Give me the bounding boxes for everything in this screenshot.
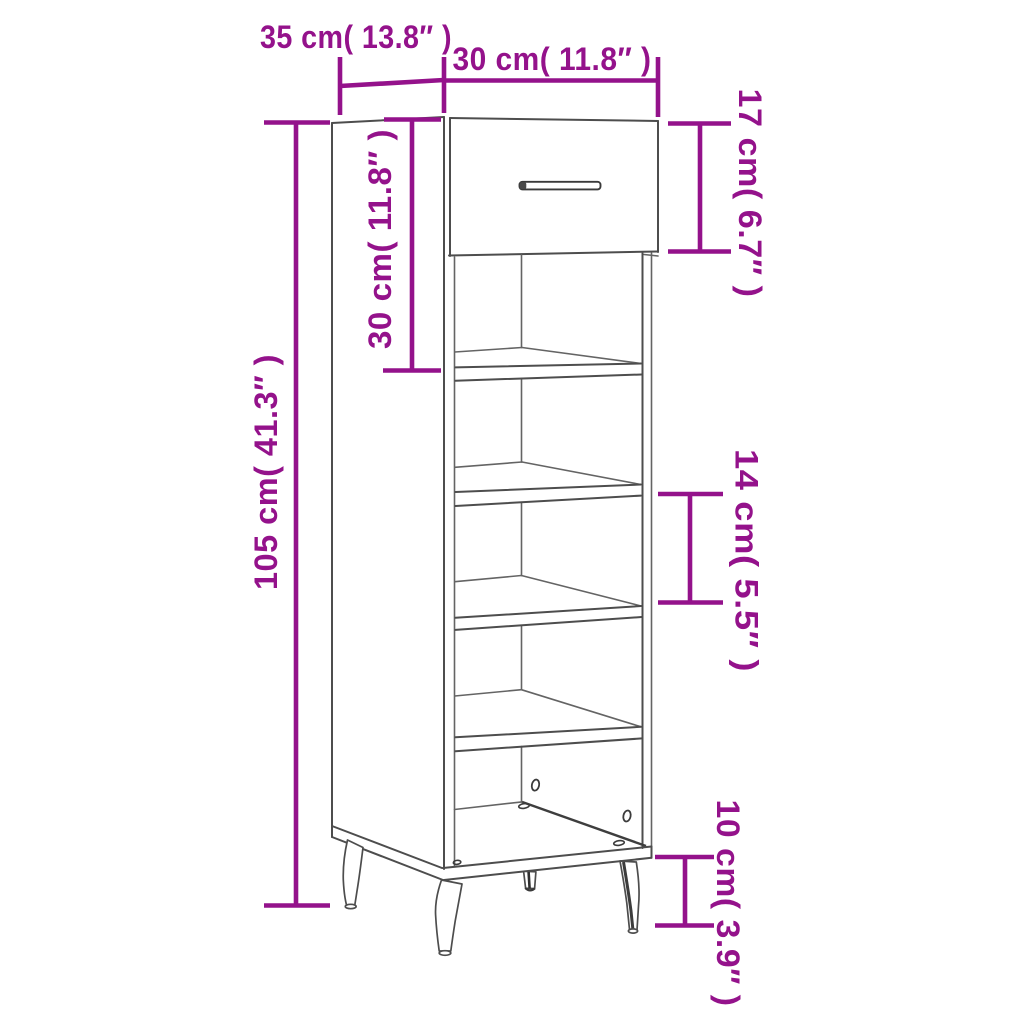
svg-text:17 cm( 6.7″ ): 17 cm( 6.7″ ): [732, 89, 768, 298]
svg-text:35 cm( 13.8″ ): 35 cm( 13.8″ ): [260, 19, 452, 55]
svg-text:14 cm( 5.5″ ): 14 cm( 5.5″ ): [729, 449, 765, 672]
svg-text:30 cm( 11.8″ ): 30 cm( 11.8″ ): [453, 41, 652, 77]
svg-text:30 cm( 11.8″ ): 30 cm( 11.8″ ): [362, 129, 398, 349]
svg-text:105 cm( 41.3″ ): 105 cm( 41.3″ ): [248, 354, 284, 590]
svg-text:10 cm( 3.9″ ): 10 cm( 3.9″ ): [710, 800, 746, 1007]
